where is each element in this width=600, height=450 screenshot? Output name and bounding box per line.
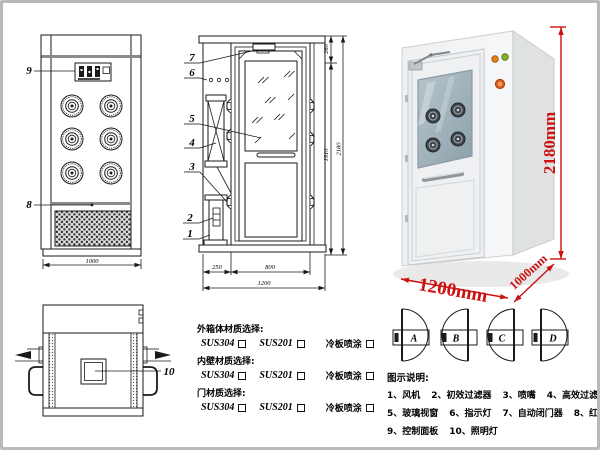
callout-6: 6 [189, 67, 195, 79]
window-glass [418, 70, 472, 168]
air-shower-datasheet: 9 8 [0, 0, 600, 450]
material-row-outer: SUS304 SUS201 冷板喷涂 [201, 337, 383, 350]
option-label-sus304: SUS304 [201, 402, 234, 413]
dim-text-1200: 1200 [258, 280, 272, 287]
door-option-a[interactable]: A [392, 306, 430, 364]
legend-line-1: 1、风机 2、初效过滤器 3、喷嘴 4、高效过滤器 [387, 388, 597, 401]
nozzle-icon [61, 128, 83, 150]
control-panel [75, 63, 111, 81]
dim-text-1000: 1000 [86, 258, 100, 265]
plan-outline [43, 305, 143, 416]
legend-item: 9、控制面板 [387, 424, 438, 437]
legend-title: 图示说明: [387, 370, 597, 384]
option-label-sus304: SUS304 [201, 370, 234, 381]
legend-item: 8、红外线感应器 [574, 406, 600, 419]
legend-item: 2、初效过滤器 [431, 388, 491, 401]
top-view-drawing: 10 [9, 299, 185, 449]
door-option-c[interactable]: C [486, 306, 524, 364]
indicator-light-green [502, 54, 508, 60]
callout-8: 8 [26, 199, 32, 211]
callout-3: 3 [188, 161, 195, 173]
dim-text-1910: 1910 [323, 148, 330, 162]
checkbox-sus304[interactable] [238, 340, 246, 348]
checkbox-sus201[interactable] [297, 404, 305, 412]
cabinet-door [405, 49, 484, 265]
callout-2: 2 [186, 212, 193, 224]
option-label-coldplate: 冷板喷涂 [326, 337, 362, 350]
door-option-d[interactable]: D [531, 306, 569, 364]
legend-item: 6、指示灯 [449, 406, 491, 419]
bottom-dimensions: 250 800 1200 [203, 252, 325, 291]
option-label-sus201: SUS201 [259, 370, 292, 381]
dim-text-250: 250 [212, 264, 223, 271]
callout-1: 1 [187, 228, 193, 240]
material-section-title-inner: 内壁材质选择: [197, 354, 383, 367]
checkbox-sus201[interactable] [297, 372, 305, 380]
material-section-title-outer: 外箱体材质选择: [197, 322, 383, 335]
nozzle-icon [100, 95, 122, 117]
nozzle-icon [61, 162, 83, 184]
dim-text-260: 260 [323, 43, 330, 54]
legend-line-3: 9、控制面板 10、照明灯 [387, 424, 597, 437]
callout-4: 4 [188, 137, 195, 149]
callout-10: 10 [164, 366, 176, 378]
air-return-grille [55, 211, 131, 246]
legend-item: 7、自动闭门器 [503, 406, 563, 419]
checkbox-coldplate[interactable] [366, 372, 374, 380]
hinge [405, 215, 408, 222]
checkbox-coldplate[interactable] [366, 340, 374, 348]
checkbox-sus201[interactable] [297, 340, 305, 348]
height-dimensions: 260 1910 2180 [323, 36, 347, 255]
base-plinth [43, 249, 141, 256]
door-option-letter: D [548, 334, 556, 345]
checkbox-sus304[interactable] [238, 372, 246, 380]
dim-text-800: 800 [265, 264, 276, 271]
legend-item: 1、风机 [387, 388, 420, 401]
material-row-inner: SUS304 SUS201 冷板喷涂 [201, 369, 383, 382]
checkbox-sus304[interactable] [238, 404, 246, 412]
material-section-title-door: 门材质选择: [197, 386, 383, 399]
option-label-sus201: SUS201 [259, 338, 292, 349]
dim-text-2180mm: 2180mm [540, 112, 559, 174]
checkbox-coldplate[interactable] [366, 404, 374, 412]
dimension-width-1000: 1000 [43, 258, 141, 269]
legend-item: 4、高效过滤器 [547, 388, 600, 401]
hinge [405, 155, 408, 162]
front-view-drawing: 9 8 [17, 25, 181, 277]
material-row-door: SUS304 SUS201 冷板喷涂 [201, 401, 383, 414]
legend-item: 5、玻璃视窗 [387, 406, 438, 419]
door-option-letter: C [499, 334, 506, 345]
door-option-letter: B [452, 334, 460, 345]
door-handle [257, 153, 295, 157]
door-option-letter: A [410, 334, 418, 345]
indicator-light-orange [492, 56, 498, 62]
side-view-drawing: 7 6 5 4 3 2 1 250 800 1200 [177, 17, 351, 297]
door-option-b[interactable]: B [440, 306, 478, 364]
dim-text-2180: 2180 [336, 142, 343, 156]
hinge [405, 95, 408, 102]
legend-item: 10、照明灯 [449, 424, 498, 437]
nozzle-icon [100, 162, 122, 184]
callout-7: 7 [189, 52, 195, 64]
emergency-button-center [498, 82, 502, 86]
legend-line-2: 5、玻璃视窗 6、指示灯 7、自动闭门器 8、红外线感应器 [387, 406, 597, 419]
option-label-coldplate: 冷板喷涂 [326, 369, 362, 382]
option-label-coldplate: 冷板喷涂 [326, 401, 362, 414]
nozzle-icon [100, 128, 122, 150]
product-photo: 2180mm 1200mm 1000mm [386, 13, 598, 309]
callout-9: 9 [26, 65, 32, 77]
legend: 图示说明: 1、风机 2、初效过滤器 3、喷嘴 4、高效过滤器 5、玻璃视窗 6… [387, 370, 597, 442]
door-hardware-left [15, 347, 43, 395]
legend-item: 3、喷嘴 [503, 388, 536, 401]
nozzle-icon [61, 95, 83, 117]
callout-5: 5 [189, 113, 195, 125]
option-label-sus201: SUS201 [259, 402, 292, 413]
option-label-sus304: SUS304 [201, 338, 234, 349]
door [231, 43, 310, 245]
material-options: 外箱体材质选择: SUS304 SUS201 冷板喷涂 内壁材质选择: SUS3… [197, 319, 383, 418]
